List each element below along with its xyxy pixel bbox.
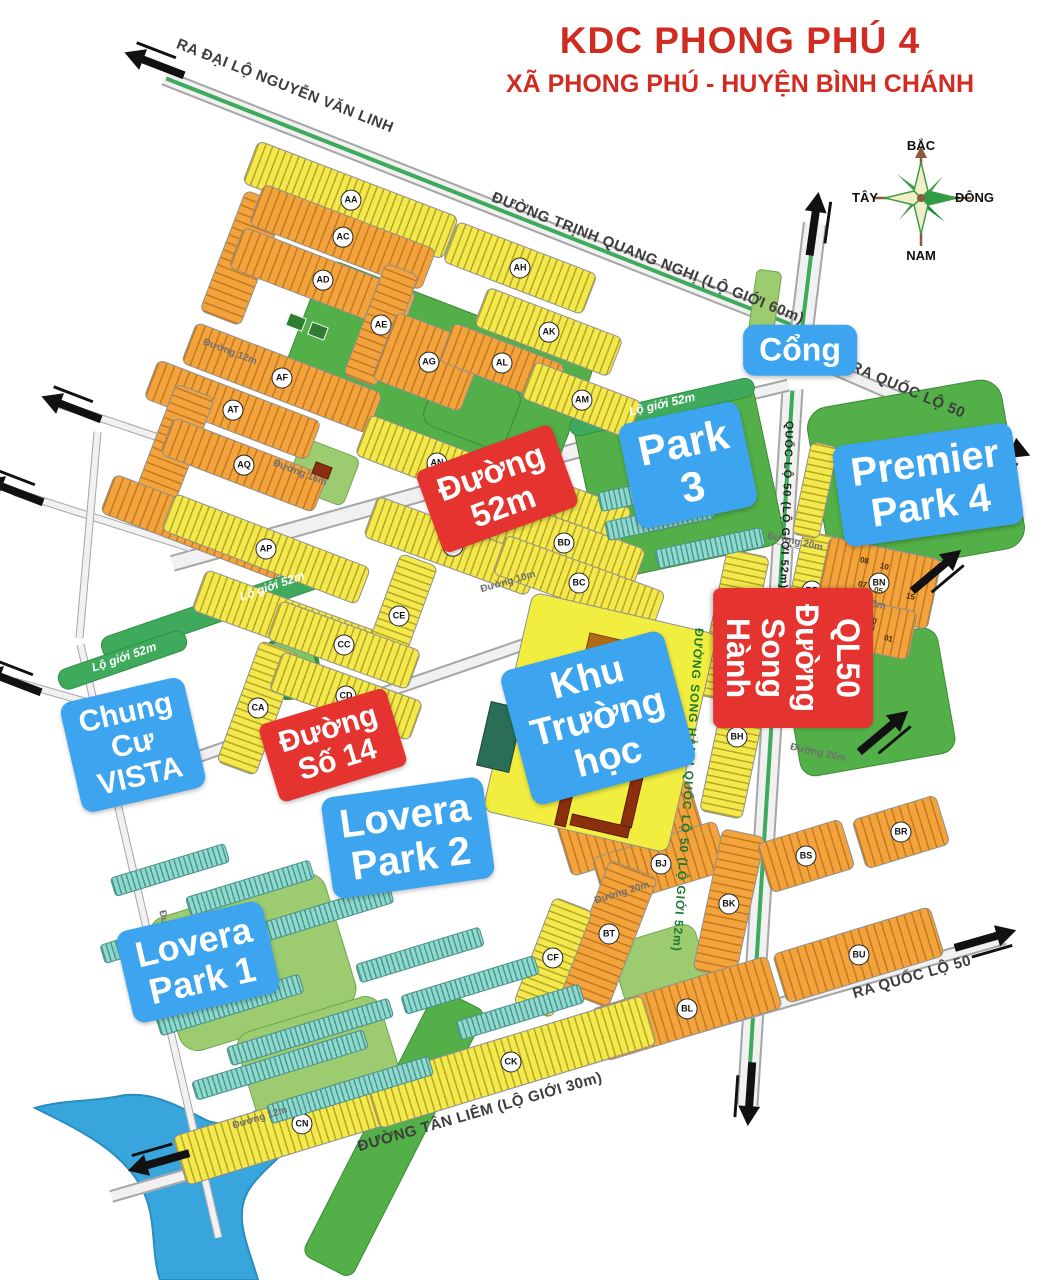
lot-number: 10 bbox=[879, 561, 890, 572]
compass-west-label: TÂY bbox=[852, 190, 878, 205]
block-label-BL: BL bbox=[676, 998, 697, 1019]
block-label-AH: AH bbox=[510, 258, 531, 279]
block-label-BT: BT bbox=[599, 924, 620, 945]
block-label-AM: AM bbox=[571, 390, 592, 411]
block-label-CF: CF bbox=[543, 947, 564, 968]
compass-north-label: BẮC bbox=[907, 138, 935, 153]
block-label-AA: AA bbox=[340, 190, 361, 211]
block-label-AL: AL bbox=[492, 353, 513, 374]
block-label-BS: BS bbox=[796, 846, 817, 867]
block-label-AD: AD bbox=[312, 270, 333, 291]
block-label-BJ: BJ bbox=[651, 854, 672, 875]
label-duong-song-hanh-ql50: Đường Song HànhQL50 bbox=[713, 588, 873, 728]
label-park-3-text: Park 3 bbox=[634, 411, 742, 519]
label-cong: Cổng bbox=[743, 325, 857, 376]
block-label-AG: AG bbox=[418, 352, 439, 373]
compass-south-label: NAM bbox=[906, 248, 936, 263]
title-line-2: XÃ PHONG PHÚ - HUYỆN BÌNH CHÁNH bbox=[430, 70, 1050, 99]
block-label-AK: AK bbox=[538, 322, 559, 343]
block-label-BR: BR bbox=[891, 822, 912, 843]
compass-rose: BẮC NAM TÂY ĐÔNG bbox=[856, 138, 986, 263]
block-label-CE: CE bbox=[389, 606, 410, 627]
block-label-BU: BU bbox=[848, 945, 869, 966]
label-duong-song-hanh-ql50-text: QL50 bbox=[831, 604, 866, 712]
block-label-AT: AT bbox=[222, 400, 243, 421]
map-title: KDC PHONG PHÚ 4 XÃ PHONG PHÚ - HUYỆN BÌN… bbox=[430, 20, 1050, 99]
direction-arrow-icon bbox=[733, 1061, 763, 1127]
block-label-AP: AP bbox=[256, 539, 277, 560]
block-label-BH: BH bbox=[727, 727, 748, 748]
block-label-CC: CC bbox=[334, 635, 355, 656]
compass-east-label: ĐÔNG bbox=[955, 190, 994, 205]
block-label-CK: CK bbox=[501, 1052, 522, 1073]
lot-number: 05 bbox=[873, 585, 884, 596]
master-plan-map: AAABACADAEAFAGAHAKALAMATASAQARAPANBEBABD… bbox=[0, 0, 1052, 1280]
lot-number: 01 bbox=[883, 633, 894, 644]
block-label-AF: AF bbox=[272, 368, 293, 389]
label-cong-text: Cổng bbox=[759, 333, 841, 368]
label-lovera-park-1-text: Lovera Park 1 bbox=[132, 911, 265, 1013]
title-line-1: KDC PHONG PHÚ 4 bbox=[430, 20, 1050, 62]
block-label-BC: BC bbox=[569, 573, 590, 594]
label-duong-song-hanh-ql50-text: Đường Song Hành bbox=[721, 604, 825, 712]
lot-number: 08 bbox=[859, 555, 870, 566]
block-label-CA: CA bbox=[248, 698, 269, 719]
block-label-AQ: AQ bbox=[233, 455, 254, 476]
block-label-BD: BD bbox=[554, 533, 575, 554]
block-label-AC: AC bbox=[332, 227, 353, 248]
block-label-BK: BK bbox=[719, 893, 740, 914]
